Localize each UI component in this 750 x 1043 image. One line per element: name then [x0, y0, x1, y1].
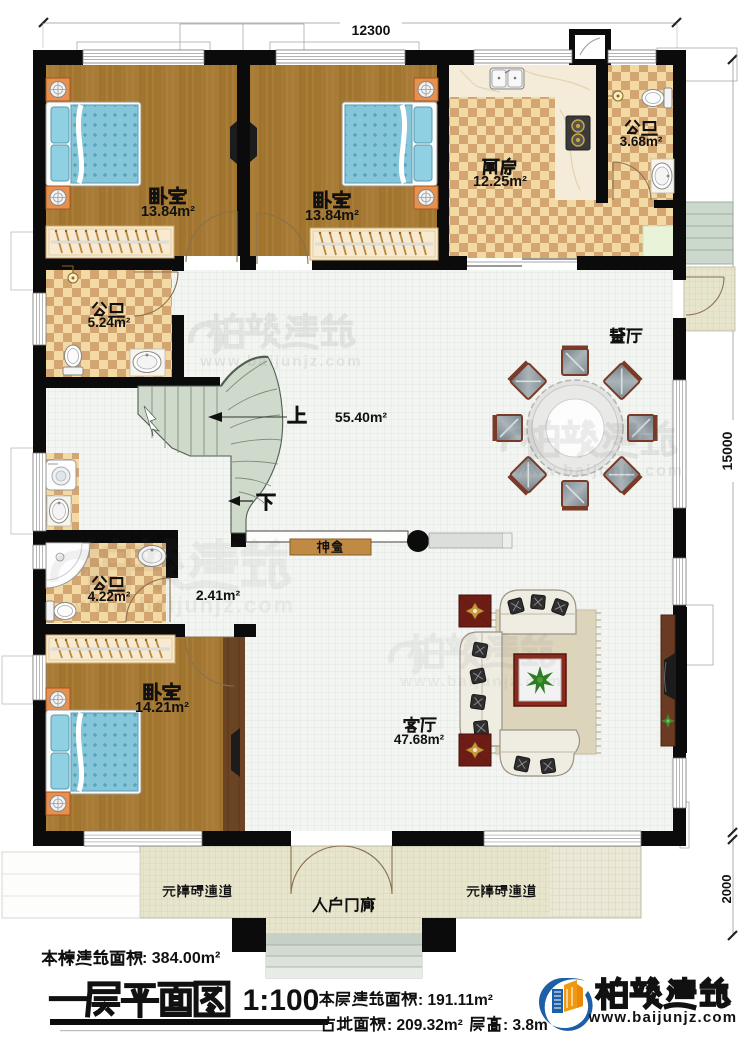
- svg-text:: 3.8m: : 3.8m: [503, 1017, 548, 1034]
- svg-text:: 209.32m²: : 209.32m²: [387, 1017, 463, 1034]
- svg-text:15000: 15000: [719, 431, 735, 470]
- svg-text:13.84m²: 13.84m²: [141, 204, 195, 220]
- svg-text:www.baijunjz.com: www.baijunjz.com: [588, 1009, 738, 1026]
- svg-text:4.22m²: 4.22m²: [88, 589, 131, 604]
- svg-text:5.24m²: 5.24m²: [88, 315, 131, 330]
- svg-text:14.21m²: 14.21m²: [135, 700, 189, 716]
- svg-text:47.68m²: 47.68m²: [394, 732, 445, 747]
- svg-text:2000: 2000: [719, 875, 734, 904]
- svg-text:www.baijunjz.com: www.baijunjz.com: [199, 353, 362, 370]
- svg-text:13.84m²: 13.84m²: [305, 208, 359, 224]
- svg-text:www.baijunjz.com: www.baijunjz.com: [513, 463, 684, 480]
- svg-text:12300: 12300: [352, 22, 391, 38]
- svg-text:1:100: 1:100: [243, 984, 320, 1017]
- svg-text:55.40m²: 55.40m²: [335, 409, 387, 425]
- svg-text:: 384.00m²: : 384.00m²: [142, 950, 220, 967]
- svg-text:12.25m²: 12.25m²: [473, 174, 527, 190]
- svg-text:www.baijunjz.com: www.baijunjz.com: [399, 673, 562, 690]
- svg-text:2.41m²: 2.41m²: [196, 587, 241, 603]
- svg-text:3.68m²: 3.68m²: [620, 134, 663, 149]
- svg-text:: 191.11m²: : 191.11m²: [418, 992, 493, 1009]
